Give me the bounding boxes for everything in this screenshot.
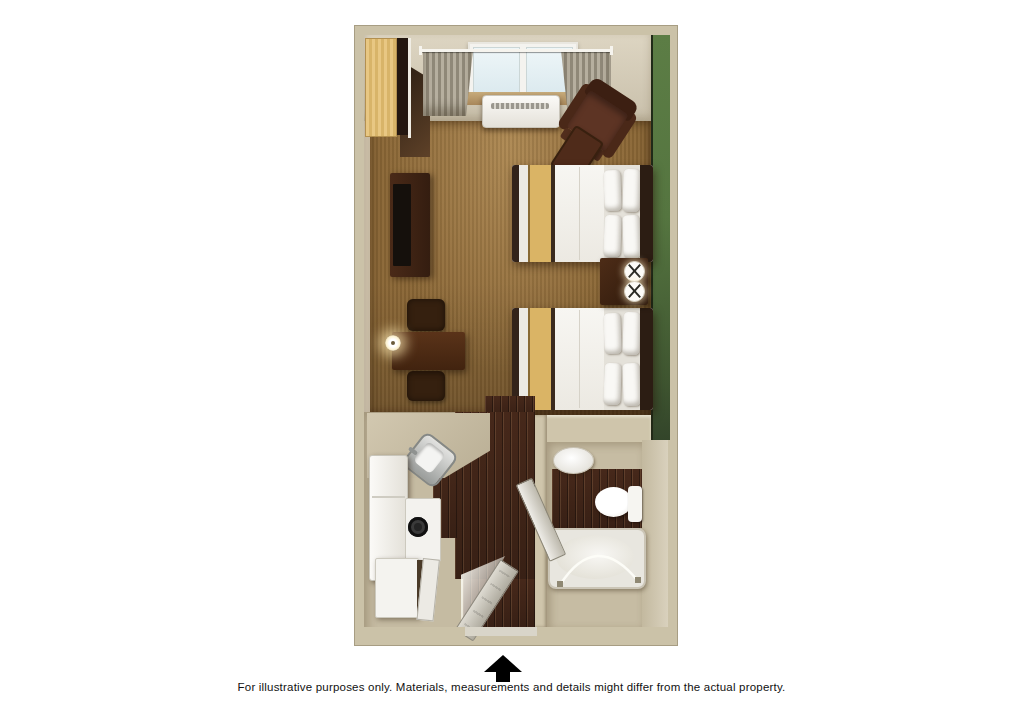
bed-frame	[512, 308, 519, 410]
curtain-rod-cap-right	[610, 46, 613, 55]
toilet-tank	[628, 486, 642, 522]
bed-duvet-foot	[519, 308, 528, 410]
closet-door	[365, 38, 397, 137]
dining-chair-top	[407, 299, 445, 331]
green-accent-wall	[651, 35, 670, 440]
ac-vent	[491, 103, 549, 109]
bathroom-wall	[535, 415, 651, 442]
bed-duvet-foot	[519, 165, 528, 262]
nightstand	[600, 258, 648, 305]
page: For illustrative purposes only. Material…	[0, 0, 1023, 716]
ac-unit	[482, 95, 560, 128]
curtain-rod	[421, 49, 613, 52]
burner	[408, 517, 428, 537]
pillow	[622, 312, 640, 356]
pillow	[603, 170, 621, 212]
closet-wall-edge	[408, 38, 411, 138]
left-wall-face	[364, 121, 370, 415]
pillow	[603, 215, 621, 258]
entrance-arrow-icon	[484, 655, 522, 672]
pillow	[603, 363, 621, 406]
bed-duvet	[555, 165, 604, 262]
headboard	[640, 308, 653, 410]
tv	[393, 184, 411, 266]
bed-1	[512, 165, 653, 262]
pillow	[622, 215, 640, 259]
bed-frame	[512, 165, 519, 262]
lamp-icon	[624, 261, 645, 282]
headboard	[640, 165, 653, 262]
bathroom-wall	[642, 440, 668, 627]
pillow	[622, 363, 640, 407]
dining-table	[392, 332, 465, 370]
toilet	[595, 487, 632, 517]
pillow	[622, 169, 640, 213]
bed-2	[512, 308, 653, 410]
disclaimer-caption: For illustrative purposes only. Material…	[0, 681, 1023, 693]
curtain-left	[423, 50, 473, 116]
bathroom-sink	[553, 447, 594, 474]
table-lamp	[385, 335, 401, 351]
dining-chair-bottom	[407, 371, 445, 401]
curtain-rod-cap-left	[419, 46, 422, 55]
closet	[365, 38, 409, 135]
pillow	[603, 313, 621, 355]
entry-threshold	[465, 627, 537, 636]
window-pane-left	[473, 47, 520, 93]
floor-plan	[355, 26, 677, 645]
bed-duvet	[555, 308, 604, 410]
cabinet	[375, 558, 419, 618]
lamp-icon	[624, 281, 645, 302]
